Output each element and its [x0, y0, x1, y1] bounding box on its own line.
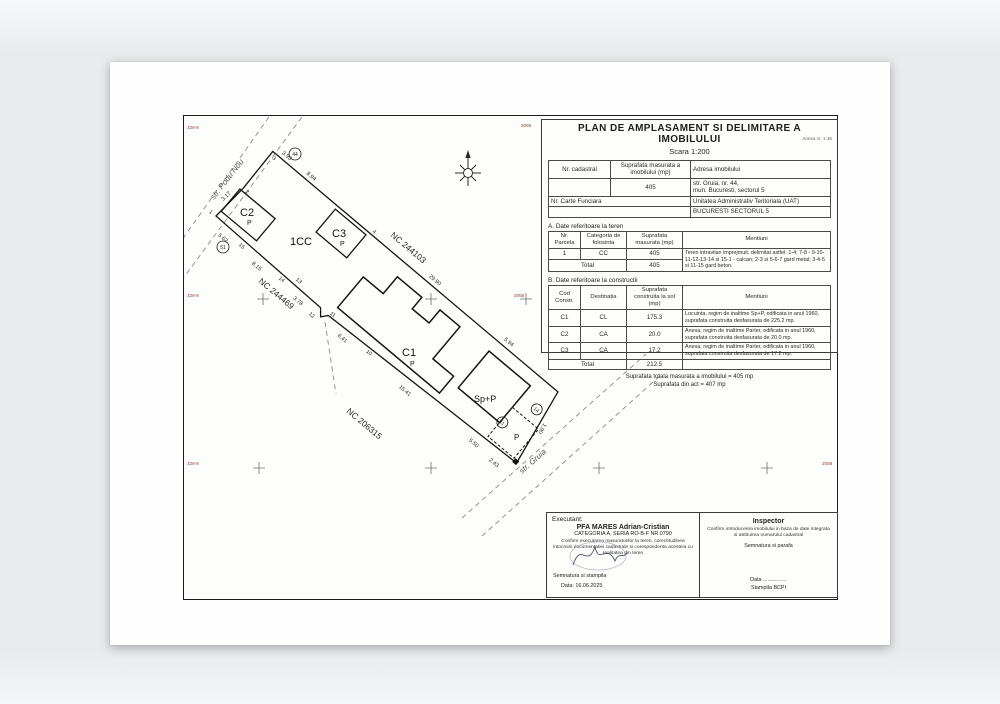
executant-signature-label: Semnatura si stampila: [553, 573, 606, 579]
adresa-line2: mun. Bucuresti, sectorul 5: [693, 187, 828, 194]
annex-note: Anexa nr. 1.35: [802, 136, 832, 141]
col-adresa: Adresa imobilului: [691, 161, 831, 179]
teren-header: Nr. Parcela: [549, 231, 581, 248]
uat-value: BUCURESTI SECTORUL 5: [691, 207, 831, 217]
constr-destinatia: CA: [581, 326, 627, 343]
plan-frame: 328-8 2058 328-8 2058 328-8 2058 str. Po…: [183, 115, 838, 600]
street-bottom-label: str. Gruia: [517, 447, 548, 476]
teren-header: Mentiuni: [683, 231, 831, 248]
teren-header: Suprafata masurata (mp): [627, 231, 683, 248]
suprafata-value: 405: [611, 178, 691, 196]
constr-suprafata: 175.3: [627, 310, 683, 327]
constr-cod: C2: [549, 326, 581, 343]
circled-point-label: 44: [292, 152, 298, 158]
constructii-total-label: Total: [549, 359, 627, 369]
suprafata-totala-line: Suprafata totala masurata a imobilului =…: [548, 373, 831, 381]
suprafata-act-line: Suprafata din act = 407 mp: [548, 381, 831, 389]
constructii-header: Mentiuni: [683, 286, 831, 310]
dim-label: 6.41: [336, 333, 348, 345]
point-number: 12: [307, 311, 315, 319]
table-row: Total 212.5: [549, 359, 831, 369]
label-c3: C3: [332, 228, 346, 240]
parcela-suprafata: 405: [627, 248, 683, 260]
parcela-categoria: CC: [581, 248, 627, 260]
dim-label: 3.93: [280, 150, 292, 162]
adresa-value: str. Gruia, nr. 44, mun. Bucuresti, sect…: [691, 178, 831, 196]
inspector-box: Inspector Confirm introducerea imobilulu…: [700, 513, 837, 597]
constr-destinatia: CA: [581, 343, 627, 360]
point-number: 2: [244, 189, 250, 196]
constructii-header: Destinatia: [581, 286, 627, 310]
constr-destinatia: CL: [581, 310, 627, 327]
dimension-labels: 3.93 8.94 29.90 5.94 3.17 5.62 8.15 3.78…: [200, 139, 575, 479]
circled-point-label: 14: [532, 406, 540, 414]
grid-label: 328-8: [187, 125, 199, 130]
carte-funciara-value: [549, 207, 691, 217]
col-suprafata: Suprafata masurata a imobilului (mp): [611, 161, 691, 179]
signature-block: Executant: PFA MARES Adrian-Cristian CAT…: [546, 512, 838, 598]
executant-heading: Executant:: [552, 516, 694, 523]
constr-cod: C1: [549, 310, 581, 327]
executant-name: PFA MARES Adrian-Cristian: [552, 524, 694, 531]
inspector-date-label: Data ................: [700, 577, 837, 583]
teren-table: Nr. Parcela Categoria de folosinta Supra…: [548, 231, 831, 272]
constr-mentiuni: Anexa, regim de inaltime Parter, edifica…: [683, 343, 831, 360]
label-c2: C2: [240, 207, 254, 219]
section-b-heading: B. Date referitoare la constructii: [548, 277, 831, 284]
inspector-heading: Inspector: [705, 518, 832, 525]
label-c2-regim: P: [247, 220, 252, 227]
constructii-header: Suprafata construita la sol (mp): [627, 286, 683, 310]
label-c1: C1: [402, 347, 416, 359]
teren-header: Categoria de folosinta: [581, 231, 627, 248]
point-number: 1: [207, 209, 213, 216]
parcela-mentiuni: Teren intravilan imprejmuit, delimitat a…: [683, 248, 831, 271]
label-nc-bottom: NC 206315: [345, 406, 385, 441]
table-row: C2 CA 20.0 Anexa, regim de inaltime Part…: [549, 326, 831, 343]
nr-cadastral-value: [549, 178, 611, 196]
col-nr-cadastral: Nr. cadastral: [549, 161, 611, 179]
parcel-outline: [210, 150, 570, 474]
label-parcel-1cc: 1CC: [290, 236, 312, 248]
label-c1-regim: P: [410, 361, 415, 368]
label-c3-regim: P: [340, 241, 345, 248]
constr-suprafata: 17.2: [627, 343, 683, 360]
dim-label: 1.90: [536, 422, 547, 434]
document-sheet: 328-8 2058 328-8 2058 328-8 2058 str. Po…: [110, 62, 890, 645]
point-number: 14: [277, 276, 285, 284]
grid-label: 328-8: [187, 293, 199, 298]
inspector-confirmation: Confirm introducerea imobilului in baza …: [705, 527, 832, 539]
point-number: 15: [237, 242, 245, 250]
circled-point-label: 11: [498, 419, 506, 427]
grid-label: 328-8: [187, 461, 199, 466]
parcela-nr: 1: [549, 248, 581, 260]
grid-label: 2058: [514, 293, 525, 298]
adresa-line1: str. Gruia, nr. 44,: [693, 180, 828, 187]
dim-label: 8.15: [250, 261, 262, 273]
dim-label: 8.94: [305, 171, 317, 183]
label-sp-p: Sp+P: [474, 394, 496, 404]
label-nc-top: NC 244103: [389, 230, 429, 265]
executant-certificate: CATEGORIA A, SERIA RO-B-F NR.0790: [552, 531, 694, 537]
point-number: 10: [364, 349, 372, 357]
constr-mentiuni: Locuinta, regim de inaltime Sp+P, edific…: [683, 310, 831, 327]
constructii-table: Cod Constr. Destinatia Suprafata constru…: [548, 285, 831, 370]
grid-label: 2058: [521, 123, 532, 128]
constructii-header: Cod Constr.: [549, 286, 581, 310]
table-row: C3 CA 17.2 Anexa, regim de inaltime Part…: [549, 343, 831, 360]
dim-label: 2.43: [487, 457, 499, 469]
constructii-total-empty: [683, 359, 831, 369]
point-number: 3: [271, 156, 277, 163]
inspector-stamp-label: Stampila BCPI: [700, 585, 837, 591]
screen-background: 328-8 2058 328-8 2058 328-8 2058 str. Po…: [0, 0, 1000, 704]
executant-date: Data: 16.06.2025: [561, 583, 602, 589]
table-row: 1 CC 405 Teren intravilan imprejmuit, de…: [549, 248, 831, 260]
constr-cod: C3: [549, 343, 581, 360]
compass-north-icon: [455, 150, 481, 186]
teren-total-value: 405: [627, 260, 683, 272]
plan-title: PLAN DE AMPLASAMENT SI DELIMITARE A IMOB…: [548, 123, 831, 145]
uat-label: Unitatea Administrativ Teritoriala (UAT): [691, 196, 831, 206]
table-row: C1 CL 175.3 Locuinta, regim de inaltime …: [549, 310, 831, 327]
grid-label: 2058: [822, 461, 833, 466]
imobil-info-table: Nr. cadastral Suprafata masurata a imobi…: [548, 160, 831, 218]
circled-point-label: 51: [220, 245, 226, 251]
carte-funciara-label: Nr. Carte Funciara: [549, 196, 691, 206]
plan-scale: Scara 1:200: [548, 147, 831, 156]
title-block: PLAN DE AMPLASAMENT SI DELIMITARE A IMOB…: [541, 119, 838, 353]
label-p-annex: P: [514, 433, 519, 442]
signature: [565, 539, 631, 573]
dim-label: 29.90: [427, 274, 442, 288]
constr-suprafata: 20.0: [627, 326, 683, 343]
constructii-total-value: 212.5: [627, 359, 683, 369]
building-c1: [338, 259, 481, 394]
building-sp-p: [458, 351, 530, 422]
dim-label: 15.41: [397, 384, 412, 398]
inspector-signature-label: Semnatura si parafa: [705, 543, 832, 549]
constr-mentiuni: Anexa, regim de inaltime Parter, edifica…: [683, 326, 831, 343]
dim-label: 5.50: [467, 438, 479, 450]
point-number: 13: [294, 277, 302, 285]
point-number: 11: [328, 311, 336, 319]
teren-total-label: Total: [549, 260, 627, 272]
executant-box: Executant: PFA MARES Adrian-Cristian CAT…: [547, 513, 700, 597]
section-a-heading: A. Date referitoare la teren: [548, 223, 831, 230]
